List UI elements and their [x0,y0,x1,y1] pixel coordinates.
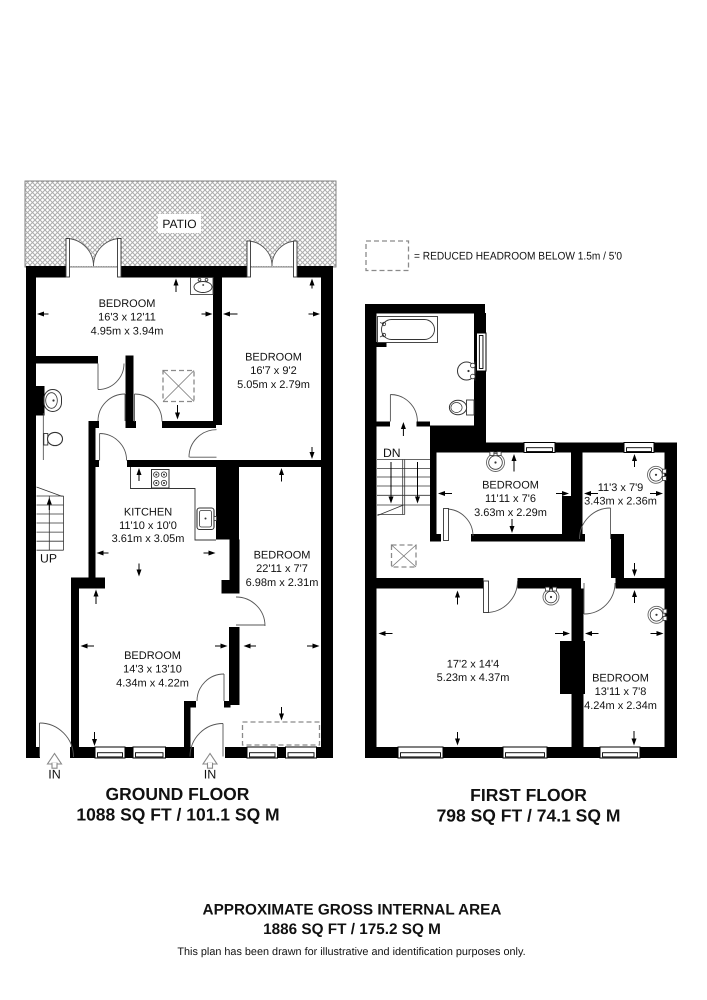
svg-text:1088 SQ FT / 101.1 SQ M: 1088 SQ FT / 101.1 SQ M [76,805,279,825]
svg-text:16'7 x 9'2: 16'7 x 9'2 [250,365,296,377]
svg-text:PATIO: PATIO [162,217,196,231]
svg-text:4.95m x 3.94m: 4.95m x 3.94m [91,325,164,337]
svg-text:798 SQ FT / 74.1 SQ M: 798 SQ FT / 74.1 SQ M [437,806,621,826]
svg-text:4.24m x 2.34m: 4.24m x 2.34m [584,700,657,712]
svg-text:BEDROOM: BEDROOM [482,480,539,492]
svg-text:IN: IN [204,768,217,782]
svg-text:UP: UP [40,552,57,566]
svg-text:3.63m x 2.29m: 3.63m x 2.29m [474,507,547,519]
svg-text:16'3 x 12'11: 16'3 x 12'11 [98,312,156,324]
svg-text:BEDROOM: BEDROOM [245,352,302,364]
svg-text:6.98m x 2.31m: 6.98m x 2.31m [246,577,319,589]
svg-text:= REDUCED HEADROOM BELOW 1.5m: = REDUCED HEADROOM BELOW 1.5m / 5'0 [414,251,622,263]
svg-text:17'2 x 14'4: 17'2 x 14'4 [447,659,500,671]
svg-text:3.61m x 3.05m: 3.61m x 3.05m [112,533,185,545]
svg-text:BEDROOM: BEDROOM [592,673,649,685]
svg-text:BEDROOM: BEDROOM [99,298,156,310]
svg-text:5.23m x 4.37m: 5.23m x 4.37m [437,672,510,684]
svg-text:4.34m x 4.22m: 4.34m x 4.22m [116,677,189,689]
svg-text:KITCHEN: KITCHEN [124,507,172,519]
svg-text:1886 SQ FT / 175.2 SQ M: 1886 SQ FT / 175.2 SQ M [263,921,441,938]
svg-text:11'10 x 10'0: 11'10 x 10'0 [119,520,177,532]
svg-text:This plan has been drawn for i: This plan has been drawn for illustrativ… [177,946,525,958]
svg-text:DN: DN [383,446,401,460]
svg-text:13'11 x 7'8: 13'11 x 7'8 [595,686,647,698]
svg-text:22'11 x 7'7: 22'11 x 7'7 [256,563,308,575]
svg-text:BEDROOM: BEDROOM [254,550,311,562]
svg-text:11'11 x 7'6: 11'11 x 7'6 [485,493,536,505]
svg-text:FIRST FLOOR: FIRST FLOOR [470,785,587,805]
svg-text:11'3 x 7'9: 11'3 x 7'9 [598,482,644,494]
svg-text:3.43m x 2.36m: 3.43m x 2.36m [584,496,657,508]
svg-text:BEDROOM: BEDROOM [124,650,181,662]
svg-text:5.05m x 2.79m: 5.05m x 2.79m [237,379,310,391]
svg-text:GROUND FLOOR: GROUND FLOOR [106,784,250,804]
svg-text:14'3 x 13'10: 14'3 x 13'10 [123,664,182,676]
svg-text:IN: IN [48,768,61,782]
svg-text:APPROXIMATE GROSS INTERNAL ARE: APPROXIMATE GROSS INTERNAL AREA [203,902,502,919]
